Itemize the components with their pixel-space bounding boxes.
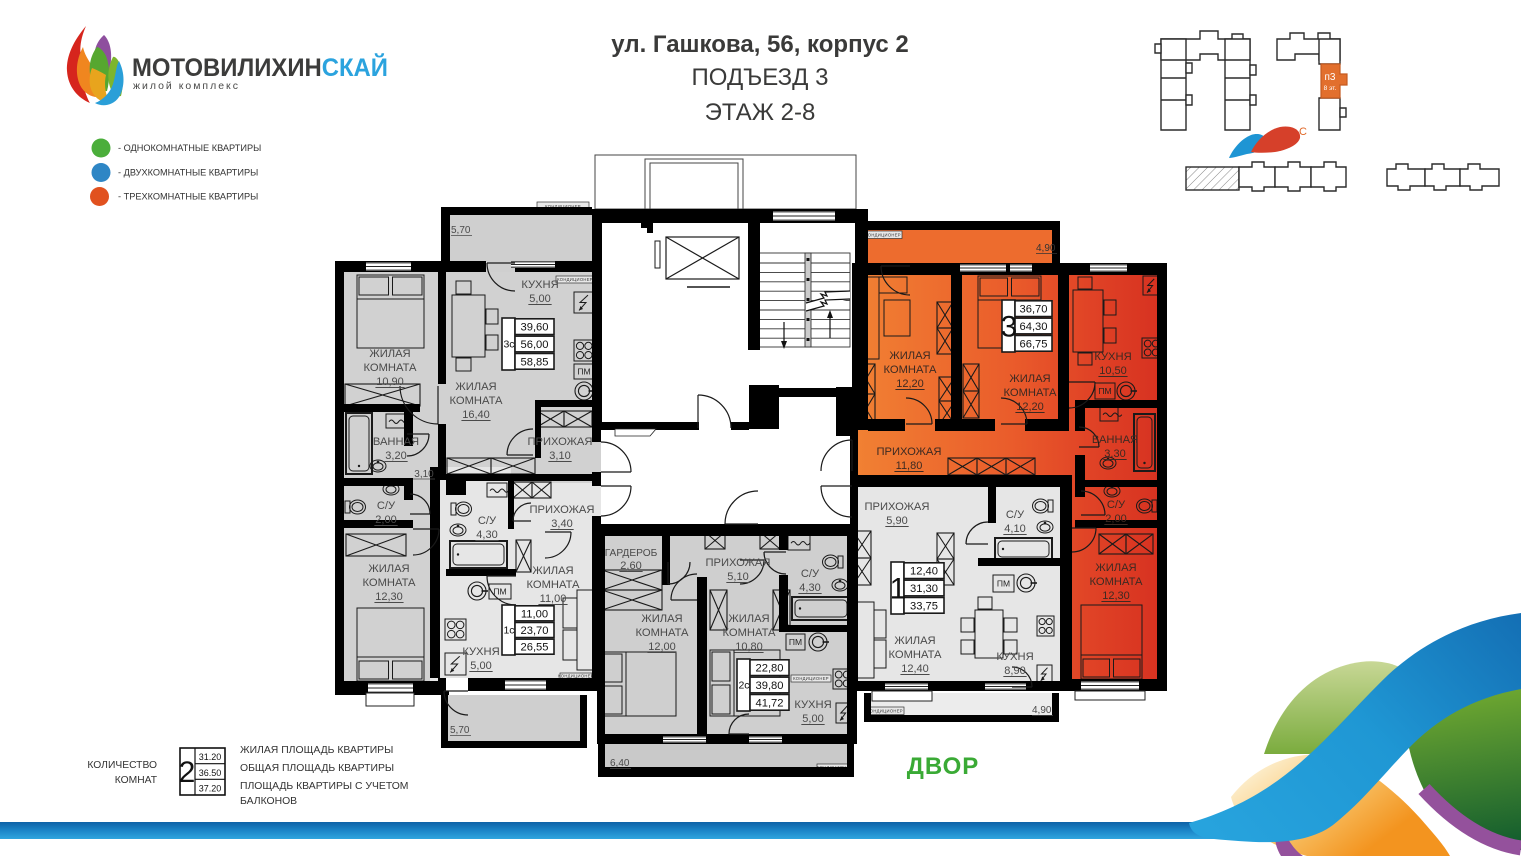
- svg-text:10,80: 10,80: [735, 641, 763, 653]
- svg-text:12,20: 12,20: [896, 378, 924, 390]
- svg-text:ПЛОЩАДЬ КВАРТИРЫ С УЧЕТОМ: ПЛОЩАДЬ КВАРТИРЫ С УЧЕТОМ: [240, 781, 408, 792]
- svg-text:5,70: 5,70: [451, 225, 471, 236]
- svg-text:10,90: 10,90: [376, 376, 404, 388]
- svg-text:КОНДИЦИОНЕР: КОНДИЦИОНЕР: [558, 674, 594, 679]
- svg-text:58,85: 58,85: [521, 356, 549, 368]
- svg-text:10,50: 10,50: [1099, 365, 1127, 377]
- svg-text:5,00: 5,00: [802, 713, 823, 725]
- svg-text:5,70: 5,70: [450, 725, 470, 736]
- svg-text:5,00: 5,00: [470, 660, 491, 672]
- svg-text:КУХНЯ: КУХНЯ: [521, 279, 558, 291]
- svg-text:36.50: 36.50: [199, 768, 222, 778]
- svg-text:КОМНАТА: КОМНАТА: [888, 649, 942, 661]
- svg-text:12,20: 12,20: [1016, 401, 1044, 413]
- svg-text:ПРИХОЖАЯ: ПРИХОЖАЯ: [528, 436, 593, 448]
- svg-text:ПРИХОЖАЯ: ПРИХОЖАЯ: [865, 501, 930, 513]
- svg-text:5,90: 5,90: [886, 515, 907, 527]
- svg-text:С/У: С/У: [377, 500, 396, 512]
- svg-text:56,00: 56,00: [521, 339, 549, 351]
- svg-text:КОМНАТА: КОМНАТА: [635, 627, 689, 639]
- svg-text:ул. Гашкова, 56, корпус 2: ул. Гашкова, 56, корпус 2: [611, 31, 908, 58]
- svg-text:жилой комплекс: жилой комплекс: [133, 80, 240, 92]
- svg-text:41,72: 41,72: [756, 697, 784, 709]
- svg-text:КОМНАТА: КОМНАТА: [1003, 387, 1057, 399]
- svg-text:4,30: 4,30: [799, 582, 820, 594]
- svg-text:ЖИЛАЯ: ЖИЛАЯ: [728, 613, 769, 625]
- svg-text:3с: 3с: [503, 339, 514, 351]
- svg-text:39,80: 39,80: [756, 680, 784, 692]
- svg-text:4,90: 4,90: [1032, 705, 1052, 716]
- svg-text:КОМНАТА: КОМНАТА: [722, 627, 776, 639]
- svg-text:31.20: 31.20: [199, 752, 222, 762]
- svg-text:МОТОВИЛИХИНСКАЙ: МОТОВИЛИХИНСКАЙ: [132, 52, 388, 82]
- svg-text:12,00: 12,00: [648, 641, 676, 653]
- svg-text:КУХНЯ: КУХНЯ: [1094, 351, 1131, 363]
- svg-text:КУХНЯ: КУХНЯ: [794, 699, 831, 711]
- svg-text:11,00: 11,00: [521, 608, 548, 620]
- svg-text:2,60: 2,60: [620, 560, 641, 572]
- svg-text:ЖИЛАЯ: ЖИЛАЯ: [455, 381, 496, 393]
- svg-text:С/У: С/У: [478, 515, 497, 527]
- svg-text:66,75: 66,75: [1020, 338, 1048, 350]
- svg-text:КОМНАТА: КОМНАТА: [883, 364, 937, 376]
- svg-text:11,00: 11,00: [540, 593, 567, 605]
- svg-text:12,40: 12,40: [910, 566, 938, 578]
- svg-text:4,30: 4,30: [476, 529, 497, 541]
- svg-text:37.20: 37.20: [199, 784, 222, 794]
- svg-text:ЖИЛАЯ: ЖИЛАЯ: [1095, 562, 1136, 574]
- svg-text:- ОДНОКОМНАТНЫЕ КВАРТИРЫ: - ОДНОКОМНАТНЫЕ КВАРТИРЫ: [118, 143, 261, 153]
- svg-text:ЖИЛАЯ: ЖИЛАЯ: [894, 635, 935, 647]
- svg-text:- ТРЕХКОМНАТНЫЕ КВАРТИРЫ: - ТРЕХКОМНАТНЫЕ КВАРТИРЫ: [118, 192, 258, 202]
- svg-text:2,00: 2,00: [375, 514, 396, 526]
- svg-text:3,20: 3,20: [385, 450, 406, 462]
- svg-text:ЖИЛАЯ: ЖИЛАЯ: [641, 613, 682, 625]
- svg-text:ЖИЛАЯ: ЖИЛАЯ: [368, 563, 409, 575]
- svg-text:КОМНАТА: КОМНАТА: [363, 362, 417, 374]
- svg-text:ПМ: ПМ: [997, 578, 1010, 588]
- svg-text:- ДВУХКОМНАТНЫЕ КВАРТИРЫ: - ДВУХКОМНАТНЫЕ КВАРТИРЫ: [118, 168, 258, 178]
- svg-text:36,70: 36,70: [1020, 304, 1048, 316]
- svg-text:ПМ: ПМ: [577, 366, 590, 376]
- svg-text:31,30: 31,30: [910, 583, 938, 595]
- svg-text:ДВОР: ДВОР: [907, 753, 980, 780]
- svg-text:КОМНАТА: КОМНАТА: [1089, 576, 1143, 588]
- svg-text:4,90: 4,90: [1036, 243, 1056, 254]
- svg-text:БАЛКОНОВ: БАЛКОНОВ: [240, 796, 297, 807]
- svg-text:11,80: 11,80: [896, 460, 923, 472]
- svg-text:ЖИЛАЯ: ЖИЛАЯ: [889, 350, 930, 362]
- svg-text:33,75: 33,75: [910, 600, 938, 612]
- svg-text:С: С: [1299, 126, 1307, 138]
- svg-text:1с: 1с: [503, 625, 514, 637]
- svg-text:КОНДИЦИОНЕР: КОНДИЦИОНЕР: [865, 233, 901, 238]
- svg-text:3: 3: [1001, 311, 1018, 344]
- svg-text:КУХНЯ: КУХНЯ: [996, 651, 1033, 663]
- svg-text:ВАННАЯ: ВАННАЯ: [373, 436, 419, 448]
- svg-text:2: 2: [179, 756, 196, 789]
- svg-text:КОМНАТА: КОМНАТА: [449, 395, 503, 407]
- svg-text:ЖИЛАЯ ПЛОЩАДЬ КВАРТИРЫ: ЖИЛАЯ ПЛОЩАДЬ КВАРТИРЫ: [240, 745, 393, 756]
- svg-text:ПОДЪЕЗД 3: ПОДЪЕЗД 3: [692, 64, 829, 91]
- svg-text:ПМ: ПМ: [789, 637, 802, 647]
- svg-text:КОМНАТ: КОМНАТ: [115, 775, 158, 786]
- svg-text:3,10: 3,10: [549, 450, 570, 462]
- svg-text:КОМНАТА: КОМНАТА: [362, 577, 416, 589]
- svg-text:ПРИХОЖАЯ: ПРИХОЖАЯ: [530, 504, 595, 516]
- svg-text:КУХНЯ: КУХНЯ: [462, 646, 499, 658]
- svg-text:ЖИЛАЯ: ЖИЛАЯ: [369, 348, 410, 360]
- svg-text:2с: 2с: [738, 680, 749, 692]
- svg-text:64,30: 64,30: [1020, 321, 1048, 333]
- svg-text:ГАРДЕРОБ: ГАРДЕРОБ: [605, 548, 658, 559]
- svg-text:5,00: 5,00: [529, 293, 550, 305]
- svg-text:ВАННАЯ: ВАННАЯ: [1092, 434, 1138, 446]
- svg-text:ЭТАЖ 2-8: ЭТАЖ 2-8: [705, 99, 816, 126]
- svg-text:12,30: 12,30: [375, 591, 403, 603]
- svg-text:8 эт.: 8 эт.: [1324, 85, 1337, 92]
- svg-text:ЖИЛАЯ: ЖИЛАЯ: [532, 565, 573, 577]
- svg-text:КОНДИЦИОНЕР: КОНДИЦИОНЕР: [793, 676, 829, 681]
- svg-text:22,80: 22,80: [756, 663, 784, 675]
- svg-text:1: 1: [890, 573, 907, 606]
- svg-text:ОБЩАЯ ПЛОЩАДЬ КВАРТИРЫ: ОБЩАЯ ПЛОЩАДЬ КВАРТИРЫ: [240, 763, 394, 774]
- svg-text:12,40: 12,40: [901, 663, 929, 675]
- svg-text:3,40: 3,40: [551, 518, 572, 530]
- svg-text:5,10: 5,10: [727, 571, 748, 583]
- svg-text:39,60: 39,60: [521, 322, 549, 334]
- svg-text:п3: п3: [1325, 72, 1336, 83]
- svg-text:КОМНАТА: КОМНАТА: [526, 579, 580, 591]
- svg-text:С/У: С/У: [1107, 499, 1126, 511]
- svg-text:6,40: 6,40: [610, 758, 630, 769]
- svg-text:ПМ: ПМ: [1098, 386, 1111, 396]
- svg-text:4,10: 4,10: [1004, 523, 1025, 535]
- svg-text:3,30: 3,30: [1104, 448, 1125, 460]
- svg-text:2,00: 2,00: [1105, 513, 1126, 525]
- svg-text:КОНДИЦИОНЕР: КОНДИЦИОНЕР: [867, 709, 903, 714]
- svg-text:23,70: 23,70: [521, 625, 549, 637]
- svg-text:ПРИХОЖАЯ: ПРИХОЖАЯ: [877, 446, 942, 458]
- svg-text:8,90: 8,90: [1004, 665, 1025, 677]
- svg-text:16,40: 16,40: [462, 409, 490, 421]
- svg-text:ЖИЛАЯ: ЖИЛАЯ: [1009, 373, 1050, 385]
- svg-text:КОЛИЧЕСТВО: КОЛИЧЕСТВО: [87, 760, 157, 771]
- svg-text:КОНДИЦИОНЕР: КОНДИЦИОНЕР: [557, 277, 593, 282]
- svg-text:С/У: С/У: [1006, 509, 1025, 521]
- svg-text:12,30: 12,30: [1102, 590, 1130, 602]
- svg-text:ПМ: ПМ: [493, 586, 506, 596]
- svg-text:ПРИХОЖАЯ: ПРИХОЖАЯ: [706, 557, 771, 569]
- svg-text:С/У: С/У: [801, 568, 820, 580]
- svg-text:3,10: 3,10: [414, 469, 434, 480]
- svg-text:26,55: 26,55: [521, 642, 549, 654]
